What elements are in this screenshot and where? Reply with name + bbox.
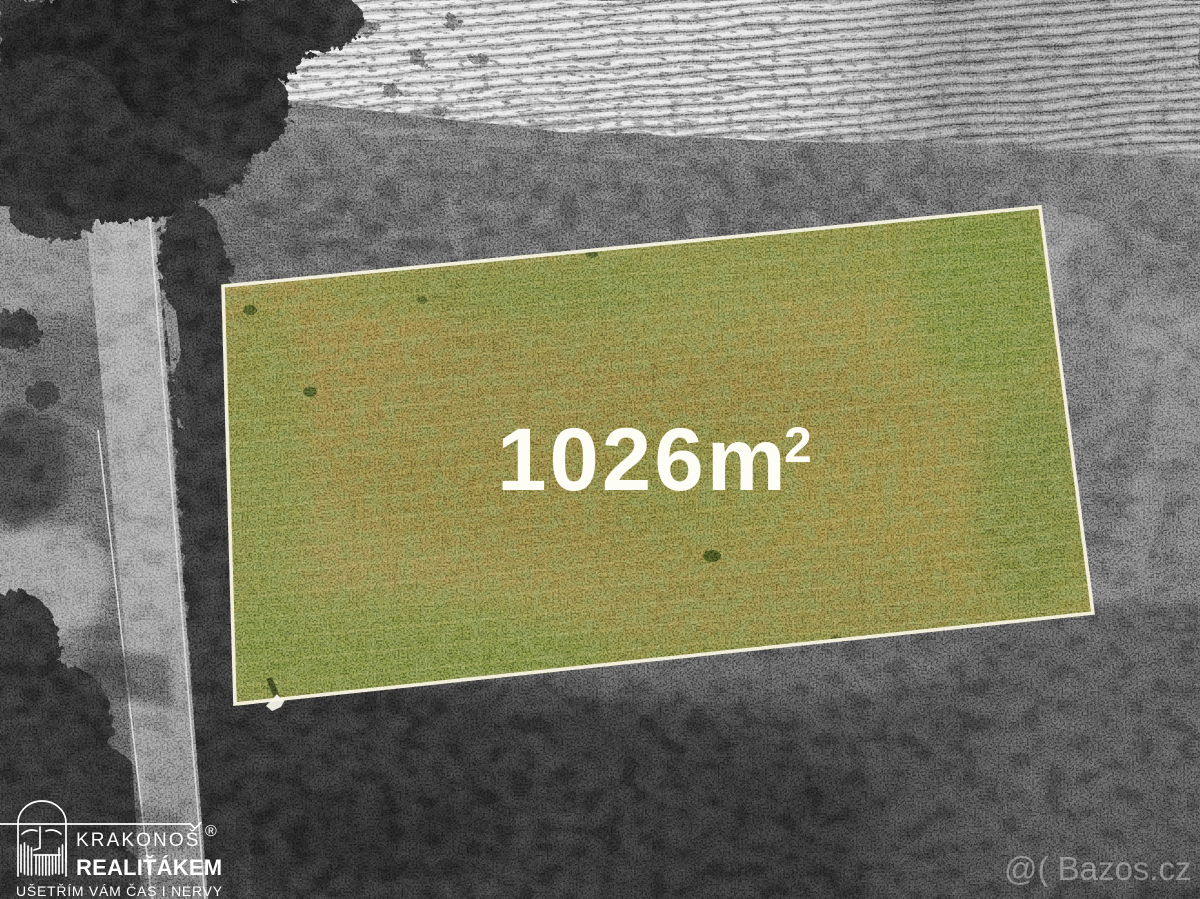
svg-text:2: 2 xyxy=(784,417,812,473)
svg-text:UŠETŘÍM VÁM ČAS I NERVY: UŠETŘÍM VÁM ČAS I NERVY xyxy=(16,883,223,899)
svg-text:@( Bazos.cz: @( Bazos.cz xyxy=(1004,850,1192,887)
svg-text:REALIŤÁKEM: REALIŤÁKEM xyxy=(76,855,222,880)
svg-text:®: ® xyxy=(205,823,217,840)
svg-text:1026m: 1026m xyxy=(497,409,789,509)
svg-text:KRAKONOŠ: KRAKONOŠ xyxy=(76,829,201,851)
